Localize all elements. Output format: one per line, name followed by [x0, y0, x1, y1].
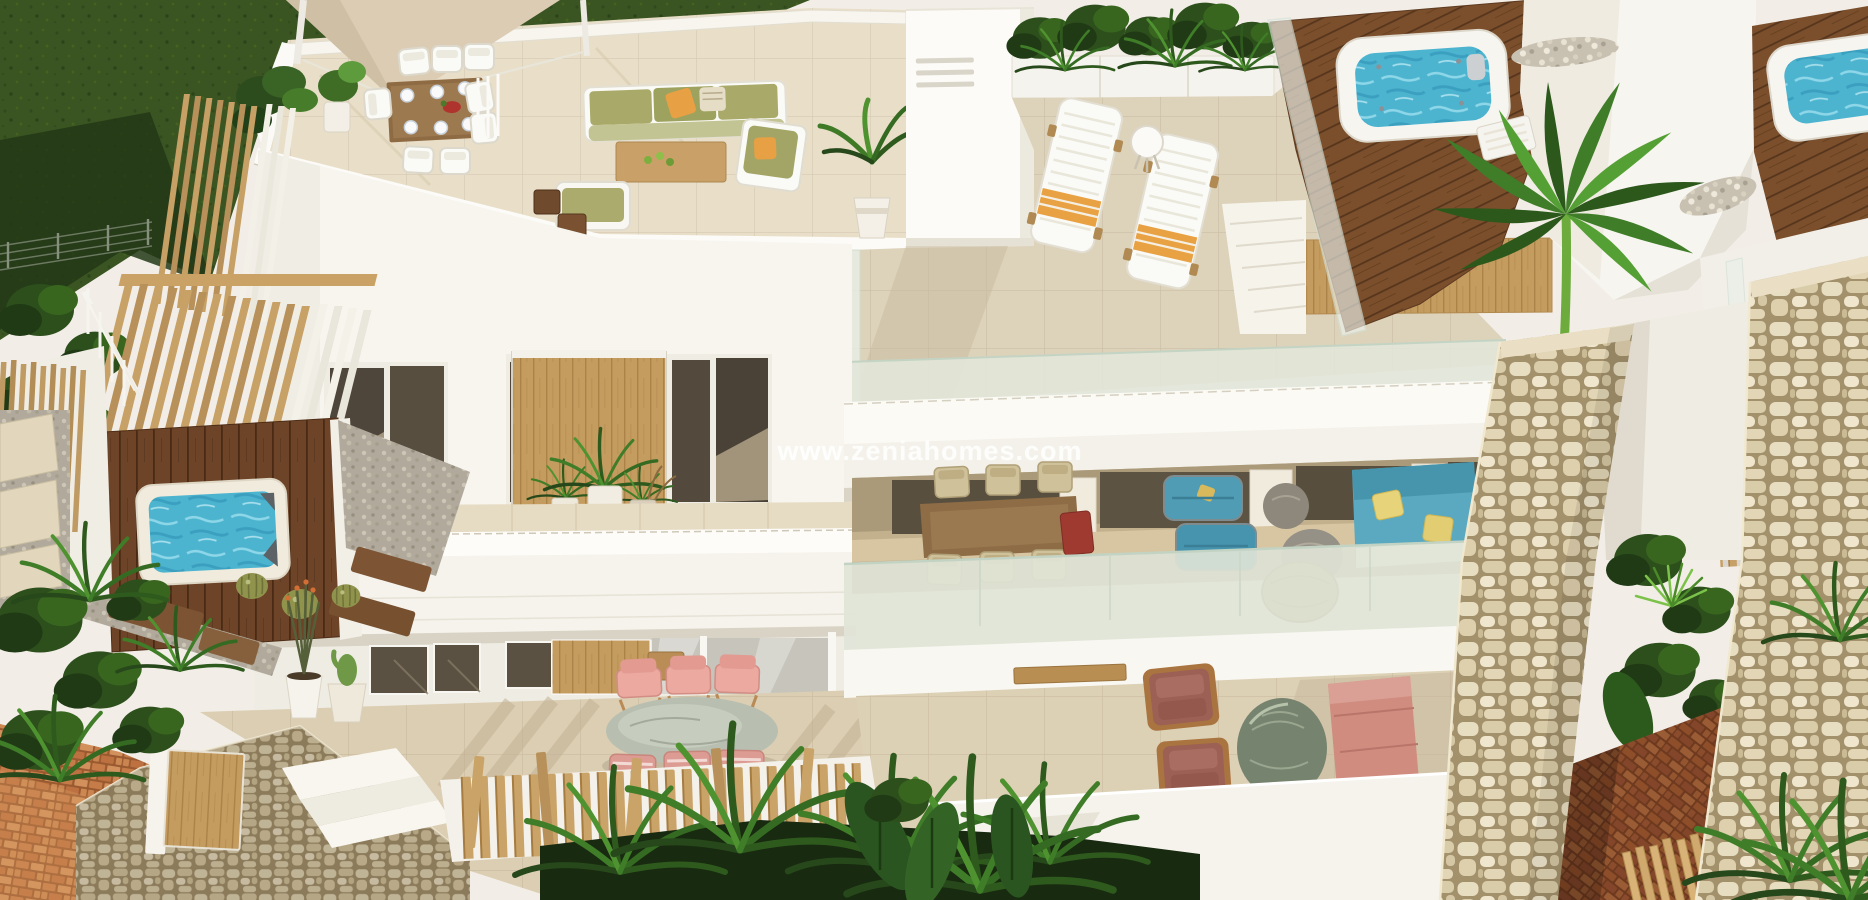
covered-terrace: [844, 456, 1508, 698]
mauve-armchair: [1142, 662, 1220, 731]
render-canvas: www.zeniahomes.com: [0, 0, 1868, 900]
website-watermark: www.zeniahomes.com: [777, 436, 1082, 467]
plunge-pool: [135, 478, 290, 586]
